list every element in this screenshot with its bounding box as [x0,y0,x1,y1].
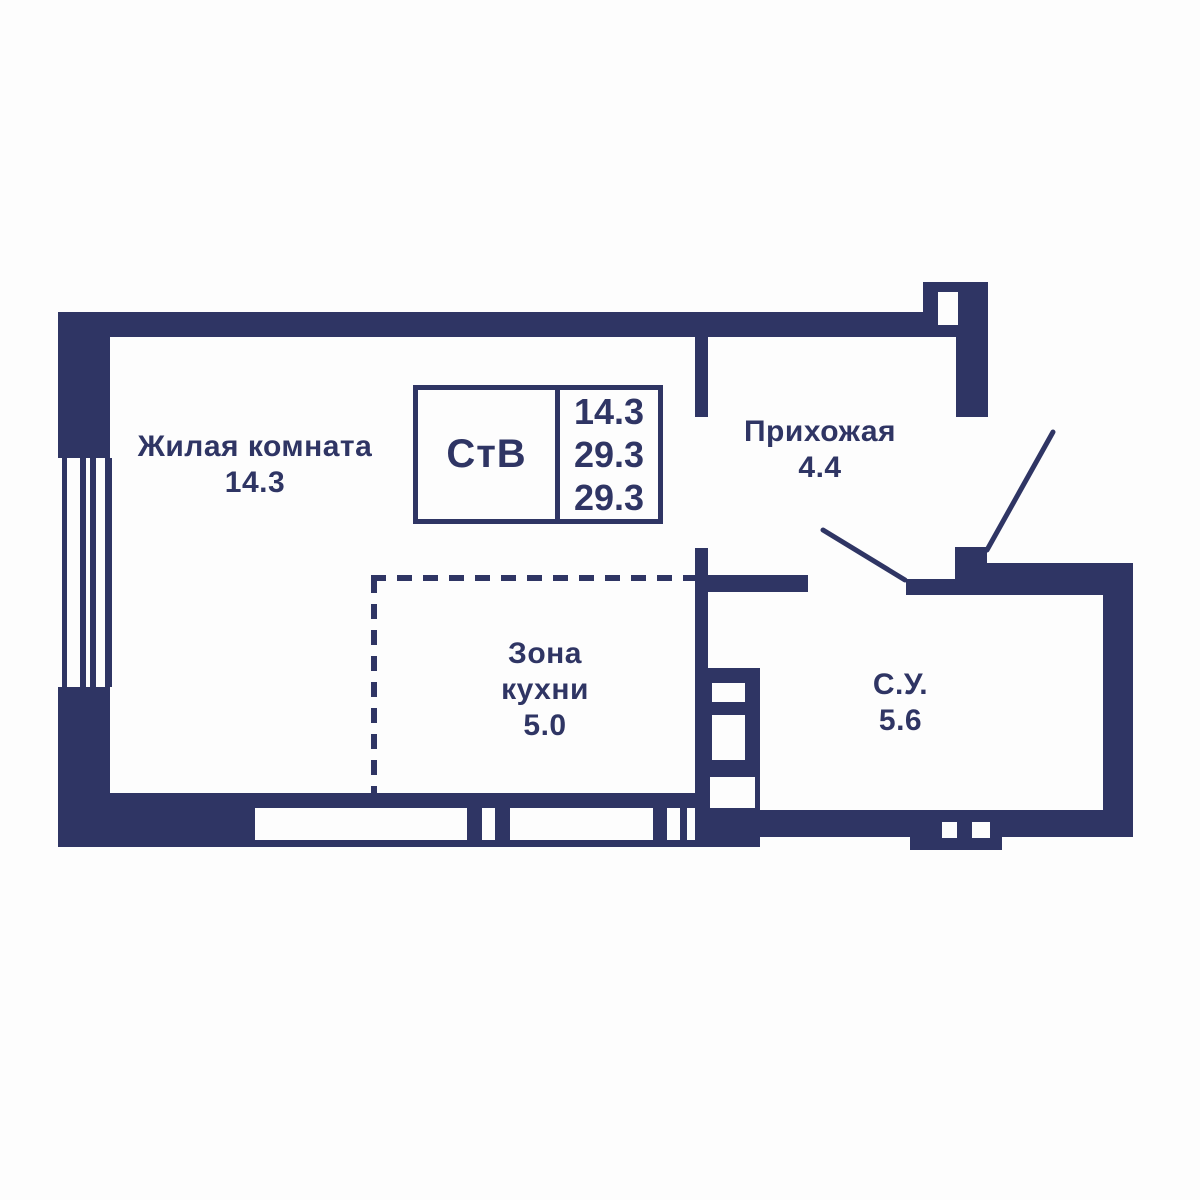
kitchen-zone-dash-horizontal [371,575,695,581]
room-name: Прихожая [700,414,940,450]
kitchen-zone-dash-vertical [371,578,377,793]
bottom-window-mullion-4 [680,808,687,840]
door-swing-overlay [0,0,1200,1200]
wall-divider-upper [695,337,708,417]
wall-bottom-left-corner [58,687,110,847]
entrance-pillar [955,547,987,595]
bathroom-bottom-protrusion [910,837,1002,850]
wall-top [58,312,957,337]
wall-bottom-solid [110,793,255,847]
bottom-window-top-frame [255,793,708,808]
room-name: Жилая комната [110,429,400,465]
room-label-bathroom: С.У. 5.6 [813,667,988,739]
room-area: 4.4 [700,450,940,486]
bathroom-top-wall-left [708,575,808,592]
room-name: С.У. [813,667,988,703]
vent-shaft-hole-3 [710,777,755,808]
bathroom-door-jamb [906,579,957,595]
wall-divider-lower [695,548,708,847]
left-window-line-outer [62,458,67,687]
room-label-hallway: Прихожая 4.4 [700,414,940,486]
bathroom-bottom-wall [757,810,1103,837]
bottom-window-mullion-1 [467,808,482,840]
left-window-line-mid1 [80,458,86,687]
room-area: 5.0 [455,708,635,744]
room-name-line2: кухни [455,672,635,708]
bottom-window-mullion-3 [653,808,667,840]
room-name-line1: Зона [455,636,635,672]
entrance-door-swing [987,432,1053,550]
apartment-areas: 14.3 29.3 29.3 [560,390,658,519]
room-label-living: Жилая комната 14.3 [110,429,400,501]
room-label-kitchen: Зона кухни 5.0 [455,636,635,744]
bottom-vent-hole-2 [972,822,990,838]
bottom-window-mullion-2 [495,808,510,840]
reduced-total-area-value: 29.3 [574,433,644,476]
bottom-vent-hole-1 [942,822,957,838]
living-area-value: 14.3 [574,390,644,433]
room-area: 14.3 [110,465,400,501]
floor-plan: СтВ 14.3 29.3 29.3 Жилая комната 14.3 Пр… [0,0,1200,1200]
bathroom-top-wall-right [987,563,1133,595]
room-area: 5.6 [813,703,988,739]
vent-shaft-hole-2 [712,715,745,760]
vent-shaft-hole-1 [712,683,745,702]
bottom-window-sill [255,840,708,847]
apartment-type-label: СтВ [418,390,560,519]
bathroom-door-swing [823,530,905,580]
wall-right [1103,595,1133,837]
wall-top-left-corner [58,337,110,458]
total-area-value: 29.3 [574,476,644,519]
left-window-line-mid2 [90,458,96,687]
top-right-block-notch [938,292,958,325]
apartment-info-box: СтВ 14.3 29.3 29.3 [413,385,663,524]
wall-top-right-column [956,337,988,417]
